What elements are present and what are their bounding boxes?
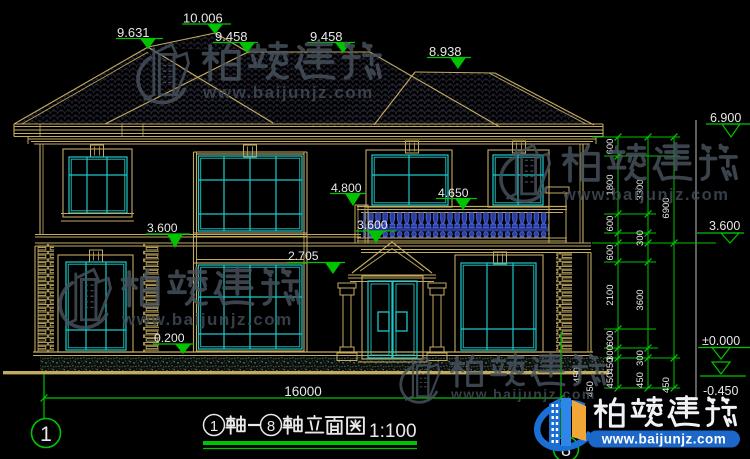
svg-text:600: 600 xyxy=(605,245,616,261)
svg-text:±0.000: ±0.000 xyxy=(702,334,740,348)
svg-text:300: 300 xyxy=(635,350,646,366)
svg-text:1:100: 1:100 xyxy=(369,421,417,442)
svg-text:9.458: 9.458 xyxy=(310,29,343,44)
svg-text:9.631: 9.631 xyxy=(117,25,150,40)
svg-text:10.006: 10.006 xyxy=(183,11,223,26)
svg-text:300: 300 xyxy=(635,230,646,246)
svg-text:3600: 3600 xyxy=(635,289,646,310)
svg-text:2.705: 2.705 xyxy=(288,249,319,263)
svg-text:16000: 16000 xyxy=(284,384,322,399)
svg-text:600: 600 xyxy=(605,331,616,347)
svg-text:450: 450 xyxy=(605,373,616,389)
svg-text:600: 600 xyxy=(605,216,616,232)
svg-text:www.baijunjz.com: www.baijunjz.com xyxy=(121,310,293,329)
svg-text:www.baijunjz.com: www.baijunjz.com xyxy=(601,432,727,447)
svg-text:3.600: 3.600 xyxy=(709,219,740,233)
svg-text:1: 1 xyxy=(210,418,218,435)
svg-text:www.baijunjz.com: www.baijunjz.com xyxy=(562,186,729,204)
svg-text:450: 450 xyxy=(635,372,646,388)
svg-text:3.600: 3.600 xyxy=(147,221,178,235)
svg-text:2100: 2100 xyxy=(605,284,616,305)
svg-text:450: 450 xyxy=(661,377,672,393)
svg-text:450: 450 xyxy=(605,358,616,374)
svg-text:1: 1 xyxy=(40,423,52,446)
svg-text:6.900: 6.900 xyxy=(710,111,741,125)
svg-text:3.600: 3.600 xyxy=(357,218,388,232)
svg-text:www.baijunjz.com: www.baijunjz.com xyxy=(450,386,596,402)
svg-text:9.458: 9.458 xyxy=(215,29,248,44)
svg-text:8: 8 xyxy=(267,418,275,435)
svg-text:www.baijunjz.com: www.baijunjz.com xyxy=(202,83,374,102)
svg-text:-0.450: -0.450 xyxy=(703,384,738,398)
svg-text:0.200: 0.200 xyxy=(154,331,185,345)
svg-text:8.938: 8.938 xyxy=(429,44,462,59)
